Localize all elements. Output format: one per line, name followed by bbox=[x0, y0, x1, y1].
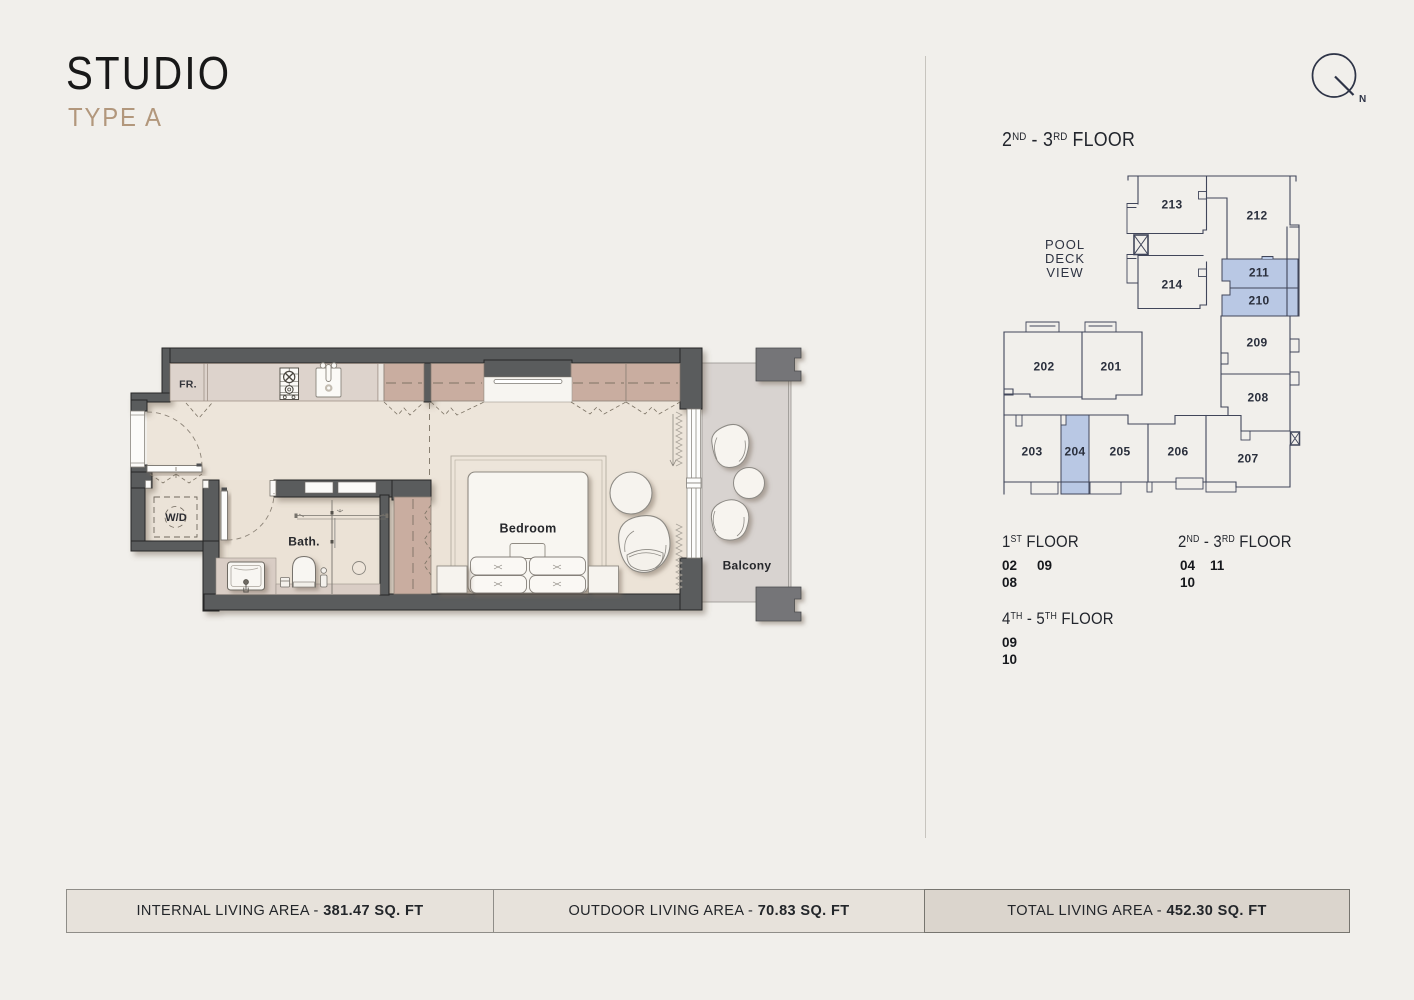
svg-text:205: 205 bbox=[1110, 445, 1131, 459]
svg-text:212: 212 bbox=[1247, 209, 1268, 223]
svg-text:POOL: POOL bbox=[1045, 237, 1085, 252]
svg-text:FR.: FR. bbox=[179, 379, 197, 391]
svg-text:Balcony: Balcony bbox=[723, 559, 772, 573]
svg-text:Bath.: Bath. bbox=[288, 535, 320, 549]
svg-text:209: 209 bbox=[1247, 336, 1268, 350]
svg-text:207: 207 bbox=[1238, 452, 1259, 466]
svg-text:W/D: W/D bbox=[165, 512, 186, 524]
svg-text:210: 210 bbox=[1249, 294, 1270, 308]
svg-text:203: 203 bbox=[1022, 445, 1043, 459]
svg-text:VIEW: VIEW bbox=[1046, 265, 1083, 280]
svg-text:206: 206 bbox=[1168, 445, 1189, 459]
svg-text:214: 214 bbox=[1162, 278, 1183, 292]
svg-text:211: 211 bbox=[1249, 266, 1269, 280]
svg-text:202: 202 bbox=[1034, 360, 1055, 374]
svg-text:204: 204 bbox=[1065, 445, 1086, 459]
svg-text:208: 208 bbox=[1248, 391, 1269, 405]
svg-text:201: 201 bbox=[1101, 360, 1122, 374]
svg-text:DECK: DECK bbox=[1045, 251, 1085, 266]
svg-text:Bedroom: Bedroom bbox=[500, 522, 557, 536]
svg-text:213: 213 bbox=[1162, 198, 1183, 212]
